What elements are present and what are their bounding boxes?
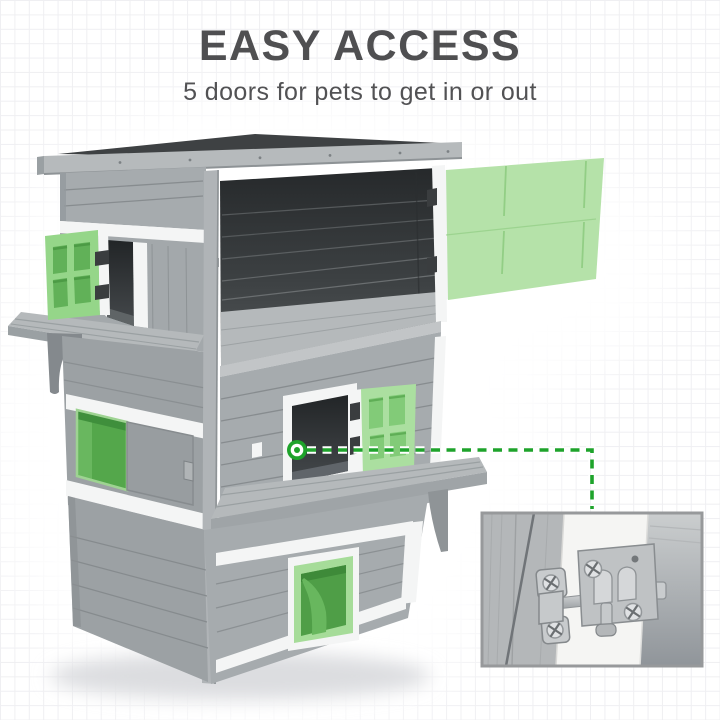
mid-window-door [350, 384, 416, 479]
sliding-panel-door [127, 422, 193, 505]
top-left-window-door [45, 229, 110, 320]
cat-house-illustration [0, 0, 720, 720]
doorway-jamb [133, 242, 148, 328]
callout-marker [287, 440, 307, 460]
door-stop-knob [252, 442, 262, 458]
guide-strap [618, 567, 636, 601]
latch-detail-inset [482, 513, 702, 666]
header: EASY ACCESS 5 doors for pets to get in o… [0, 0, 720, 107]
panel-handle [184, 461, 193, 481]
side-green-opening [77, 410, 127, 490]
headline: EASY ACCESS [0, 22, 720, 71]
product-marketing-image: EASY ACCESS 5 doors for pets to get in o… [0, 0, 720, 720]
plate-hole [632, 556, 639, 563]
door-hinge [427, 188, 437, 207]
catch-loop [539, 591, 563, 624]
subheadline: 5 doors for pets to get in or out [0, 78, 720, 107]
door-hinge [95, 284, 109, 300]
knob-foot [596, 623, 617, 636]
big-open-green-door [437, 158, 604, 301]
bottom-tunnel-door [288, 547, 359, 651]
door-hinge [427, 256, 437, 274]
door-hinge [350, 402, 360, 421]
door-hinge [95, 250, 109, 266]
